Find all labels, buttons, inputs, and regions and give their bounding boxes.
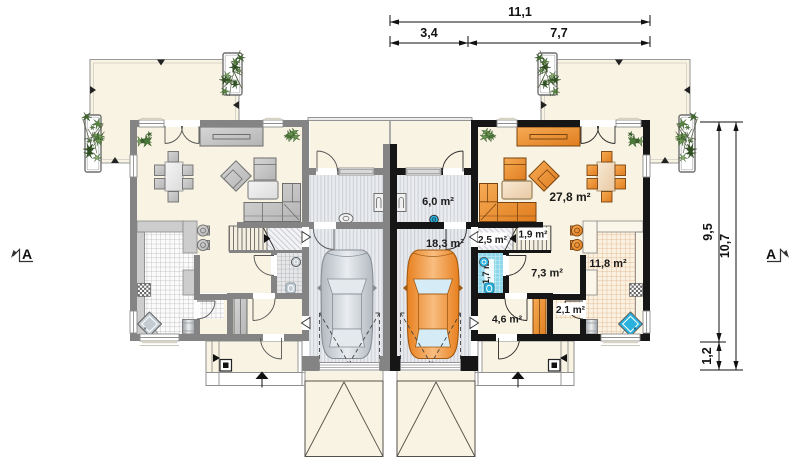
svg-text:6,0 m²: 6,0 m² — [422, 196, 454, 208]
svg-text:2,5 m²: 2,5 m² — [478, 235, 508, 246]
svg-text:3,4: 3,4 — [420, 26, 437, 40]
svg-text:11,1: 11,1 — [508, 5, 532, 19]
svg-text:A: A — [766, 246, 776, 262]
svg-text:7,7: 7,7 — [550, 26, 567, 40]
svg-text:1,9 m²: 1,9 m² — [519, 230, 549, 241]
svg-text:11,8 m²: 11,8 m² — [589, 258, 627, 270]
svg-text:9,5: 9,5 — [701, 223, 715, 240]
svg-text:1,2: 1,2 — [700, 347, 714, 364]
svg-text:A: A — [22, 246, 32, 262]
svg-text:7,3 m²: 7,3 m² — [531, 268, 563, 280]
svg-text:27,8 m²: 27,8 m² — [549, 190, 590, 204]
svg-text:4,6 m²: 4,6 m² — [492, 314, 523, 326]
svg-text:2,1 m²: 2,1 m² — [556, 305, 586, 316]
svg-text:10,7: 10,7 — [718, 234, 732, 258]
svg-text:18,3 m²: 18,3 m² — [426, 238, 464, 250]
